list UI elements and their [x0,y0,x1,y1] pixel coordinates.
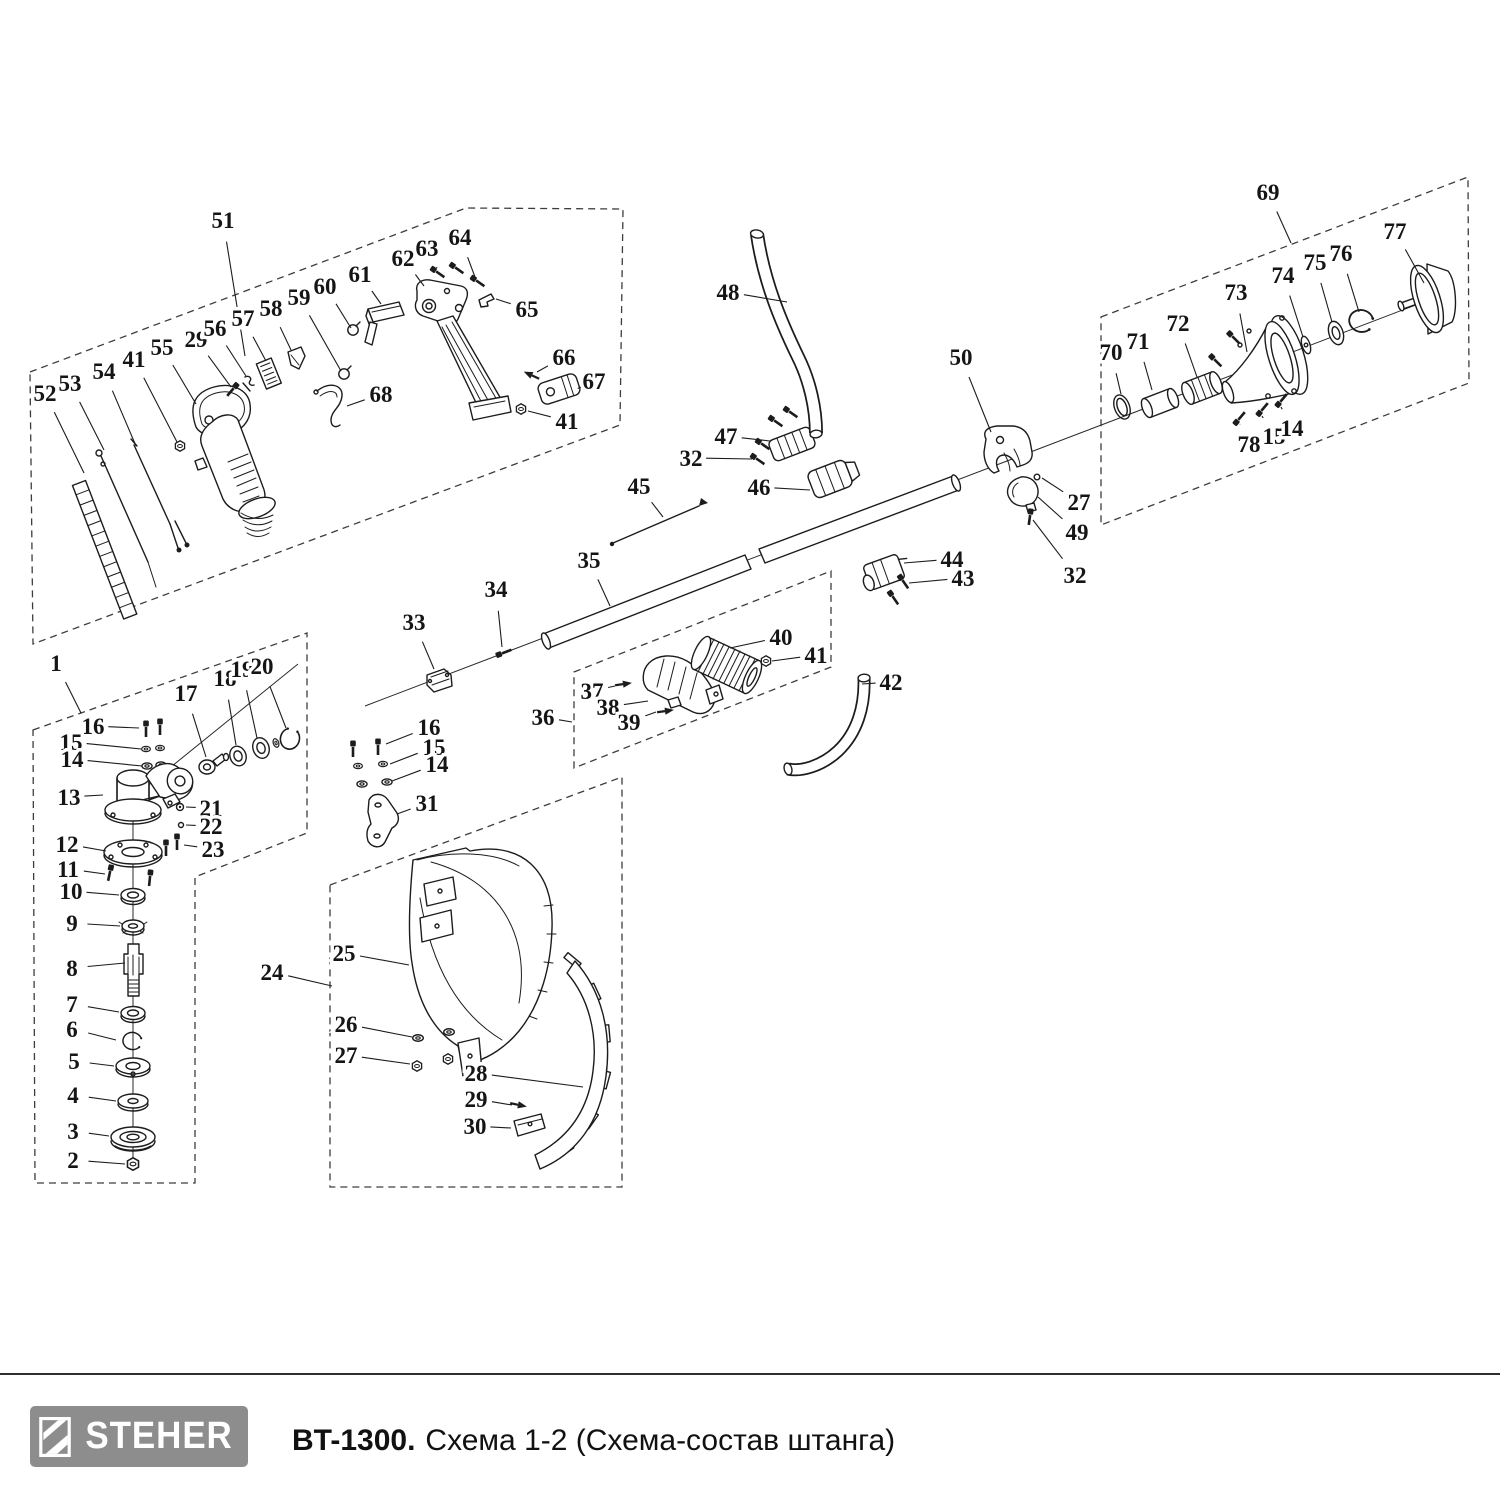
callout-28: 28 [465,1061,488,1086]
callout-7: 7 [66,992,78,1017]
leader-line-70 [1116,373,1121,394]
part-61-throttle-trigger [365,302,404,345]
part-65-clip [479,294,494,307]
callout-50: 50 [950,345,973,370]
caption-text: Схема 1-2 (Схема-состав штанга) [425,1424,895,1457]
leader-line-7 [88,1007,119,1012]
part-14-washer [1238,343,1242,347]
part-6-circlip [122,1031,143,1051]
part-25-guard-shield [409,848,556,1076]
leader-line-17 [193,714,207,757]
leader-line-1 [66,682,82,713]
part-59-ring [339,366,351,379]
leader-line-39 [645,712,656,716]
part-17-pinion-shaft [199,754,229,775]
leader-line-44 [904,560,937,563]
callout-39: 39 [618,710,641,735]
part-44-clamp-block [858,551,913,592]
callout-1: 1 [50,651,62,676]
leader-line-55 [173,365,196,404]
callout-32: 32 [1064,563,1087,588]
callout-60: 60 [314,274,337,299]
part-15-washer [379,761,388,766]
brand-logo: STEHER [30,1406,248,1467]
part-2-nut [127,1158,138,1170]
callout-42: 42 [880,670,903,695]
leader-line-33 [422,642,434,669]
part-78-screw [1208,353,1224,369]
part-15-washer [142,746,151,751]
part-15-washer [354,763,363,768]
callout-23: 23 [202,837,225,862]
part-58-lever [288,347,305,369]
part-74-washer [1299,335,1312,355]
leader-line-38 [624,701,648,705]
part-16-bolt [157,719,163,736]
leader-line-66 [537,366,548,372]
callout-6: 6 [66,1017,78,1042]
leader-line-60 [336,304,351,328]
leader-line-16 [386,734,413,745]
leader-line-72 [1185,343,1197,377]
leader-line-8 [88,963,125,967]
leader-line-19 [247,690,257,738]
part-42-handlebar-left [783,674,870,776]
part-73-clutch-bell [1220,312,1315,404]
leader-line-40 [730,641,765,649]
callout-8: 8 [66,956,78,981]
callout-30: 30 [464,1114,487,1139]
callout-58: 58 [260,296,283,321]
part-50-coupler [984,426,1034,473]
part-71-bushing [1139,387,1181,419]
leader-line-11 [84,871,105,874]
part-60-ring [348,322,360,335]
leader-line-41 [528,411,551,417]
diagram-caption: BT-1300.Схема 1-2 (Схема-состав штанга) [292,1424,895,1458]
leader-line-24 [288,976,332,986]
part-78-screw [1232,410,1247,426]
leader-line-2 [89,1161,126,1164]
part-11-bolt [146,869,153,886]
callout-73: 73 [1225,280,1248,305]
callout-55: 55 [151,335,174,360]
callout-29: 29 [465,1087,488,1112]
callout-24: 24 [261,960,285,985]
callout-74: 74 [1272,263,1296,288]
leader-line-6 [88,1033,116,1040]
callout-41: 41 [123,347,146,372]
callout-16: 16 [82,714,105,739]
part-57-switch-block [256,358,281,389]
part-29-screw [509,1100,527,1111]
leader-line-14 [88,761,142,766]
exploded-parts-diagram: 5152535441552956575859606162636465666768… [0,0,1500,1500]
callout-41: 41 [556,409,579,434]
part-64-screw [448,261,465,275]
leader-line-3 [89,1133,109,1136]
callout-43: 43 [952,566,975,591]
leader-line-75 [1321,283,1332,322]
leader-line-20 [270,686,286,728]
callout-64: 64 [449,225,473,250]
callout-4: 4 [67,1083,79,1108]
callout-3: 3 [67,1119,79,1144]
leader-line-50 [969,377,991,432]
leader-line-61 [372,291,381,304]
leader-line-36 [559,720,572,722]
part-45-cable [610,498,708,546]
leader-line-49 [1038,497,1062,519]
part-26-washer [444,1029,455,1035]
leader-line-58 [280,327,291,350]
callout-27: 27 [1068,490,1091,515]
part-46-clamp-lower [806,456,862,500]
callout-78: 78 [1238,432,1261,457]
brand-icon [39,1417,71,1457]
part-67-clamp-cap [537,372,582,405]
callout-12: 12 [56,832,79,857]
callout-65: 65 [516,297,539,322]
part-49-collar [1008,477,1038,512]
leader-line-29 [492,1102,512,1105]
part-27-nut [443,1054,452,1064]
part-13-gear-housing [105,763,198,824]
callout-14: 14 [426,752,450,777]
part-15-washer [156,745,165,750]
callout-47: 47 [715,424,738,449]
callout-56: 56 [204,316,227,341]
part-41-nut [516,404,525,414]
part-41-nut [761,656,770,666]
callout-61: 61 [349,262,372,287]
part-16-bolt [350,741,356,758]
part-76-circlip [1347,307,1376,334]
part-32-screw [782,405,799,419]
callout-63: 63 [416,236,439,261]
callout-9: 9 [66,911,78,936]
callout-67: 67 [583,369,606,394]
part-23-bolt [163,840,169,857]
leader-line-63 [437,267,438,268]
leader-line-27 [1042,478,1063,492]
leader-line-43 [909,579,947,583]
leader-line-57 [253,337,266,361]
leader-line-28 [492,1075,583,1087]
callout-20: 20 [251,654,274,679]
callout-38: 38 [597,695,620,720]
callout-76: 76 [1330,241,1353,266]
part-31-bracket [367,794,398,846]
part-4-disc [118,1094,148,1111]
part-15-screw [1255,401,1270,417]
part-20-circlip [278,726,302,751]
leader-line-25 [360,956,409,965]
leader-line-32 [1033,520,1063,559]
brand-name: STEHER [85,1415,232,1458]
callout-14: 14 [61,747,85,772]
leader-line-14 [1281,407,1282,409]
leader-line-56 [226,346,246,377]
part-5-cup-washer [116,1058,150,1077]
callout-31: 31 [416,791,439,816]
part-62-handle-housing [415,280,511,420]
part-66-screw [522,368,540,382]
part-7-bearing [121,1007,145,1023]
part-43-screw [886,589,900,606]
part-63-screw [429,265,446,279]
callout-75: 75 [1304,250,1327,275]
leader-line-68 [347,400,365,406]
callout-51: 51 [212,208,235,233]
part-16-bolt [143,721,149,738]
callout-5: 5 [68,1049,80,1074]
part-54-throttle-cable [131,439,190,553]
part-56-spring-clip [243,376,254,391]
part-77-clutch-drum [1397,262,1456,337]
callout-59: 59 [288,285,311,310]
leader-line-37 [608,686,615,688]
page: 5152535441552956575859606162636465666768… [0,0,1500,1500]
part-26-washer [413,1035,424,1041]
callout-26: 26 [335,1012,358,1037]
leader-line-54 [112,391,136,446]
part-27-nut [412,1061,421,1071]
callout-69: 69 [1257,180,1280,205]
part-52-starter-spring [72,480,136,619]
part-32-screw [767,414,784,428]
leader-line-10 [87,892,120,895]
leader-line-29 [208,356,231,387]
callout-52: 52 [34,381,57,406]
part-41-nut [175,441,184,451]
leader-line-32 [706,458,752,459]
part-22-pin [179,823,184,828]
callout-49: 49 [1066,520,1089,545]
callout-68: 68 [370,382,393,407]
part-27-pin [1034,474,1040,480]
leader-line-9 [87,924,120,926]
leader-line-69 [1277,212,1291,244]
part-34-screw [495,647,512,658]
leader-line-71 [1144,362,1152,390]
leader-line-15 [390,753,418,764]
callout-22: 22 [200,814,223,839]
callout-13: 13 [58,785,81,810]
leader-line-26 [362,1027,412,1037]
callout-70: 70 [1100,340,1123,365]
callout-54: 54 [93,359,117,384]
callout-33: 33 [403,610,426,635]
part-11-bolt [105,864,114,881]
part-23-bolt [174,834,180,851]
part-51-handle-grip [195,415,278,537]
callout-32: 32 [680,446,703,471]
part-8-output-shaft [124,944,143,996]
leader-line-51 [227,242,246,356]
callout-72: 72 [1167,311,1190,336]
part-33-clamp-block [427,669,452,692]
part-10-bearing [121,889,145,905]
callout-46: 46 [748,475,771,500]
leader-line-41 [144,378,177,442]
leader-line-16 [108,727,139,728]
callout-45: 45 [628,474,651,499]
part-37-screw [615,679,633,688]
part-21-screw [177,804,184,811]
callout-48: 48 [717,280,740,305]
part-18-bearing [227,744,248,768]
callout-53: 53 [59,371,82,396]
callout-25: 25 [333,941,356,966]
leader-line-18 [229,700,237,745]
leader-line-23 [184,845,197,847]
leader-line-52 [54,412,84,473]
callout-27: 27 [335,1043,358,1068]
leader-line-15 [1262,416,1263,418]
callout-14: 14 [1281,416,1305,441]
leader-line-53 [80,402,104,450]
part-16-bolt [375,739,381,756]
callout-41: 41 [805,643,828,668]
leader-line-13 [84,795,103,796]
leader-line-15 [87,744,141,749]
leader-line-4 [89,1097,116,1101]
callout-17: 17 [175,681,198,706]
leader-line-30 [490,1127,511,1128]
part-15-washer [1247,329,1251,333]
callout-66: 66 [553,345,576,370]
leader-line-12 [83,847,106,851]
part-14-washer [382,779,392,785]
part-14-washer [142,763,152,769]
leader-line-65 [496,299,511,304]
part-14-washer [357,781,367,787]
leader-line-59 [309,315,341,371]
callout-36: 36 [532,705,555,730]
leader-line-76 [1347,274,1359,312]
callout-62: 62 [392,246,415,271]
callout-35: 35 [578,548,601,573]
leader-line-35 [598,579,610,606]
part-64-screw [469,274,486,288]
leader-line-34 [498,611,502,647]
leader-line-46 [774,488,810,490]
leader-line-31 [397,809,411,814]
part-19-washer [272,738,280,748]
leader-line-5 [90,1063,114,1066]
callout-40: 40 [770,625,793,650]
part-75-bearing [1326,319,1347,346]
part-28-guard-strip [535,953,610,1169]
part-3-blade-holder [111,1127,155,1151]
callout-71: 71 [1127,329,1150,354]
part-12-flange [104,840,162,867]
leader-line-27 [362,1057,410,1064]
leader-line-45 [652,502,663,517]
part-19-bearing [250,736,272,761]
footer-divider [0,1373,1500,1375]
part-30-clip [514,1114,545,1136]
part-68-throttle-rod [314,385,342,426]
leader-line-41 [772,657,800,661]
callout-2: 2 [67,1148,79,1173]
leader-line-64 [468,257,475,277]
callout-57: 57 [232,306,255,331]
callout-10: 10 [60,879,83,904]
callout-34: 34 [485,577,509,602]
model-number: BT-1300. [292,1424,415,1457]
callout-77: 77 [1384,219,1407,244]
leader-line-74 [1290,296,1303,337]
leader-line-14 [392,770,421,781]
part-72-sleeve [1179,370,1225,406]
